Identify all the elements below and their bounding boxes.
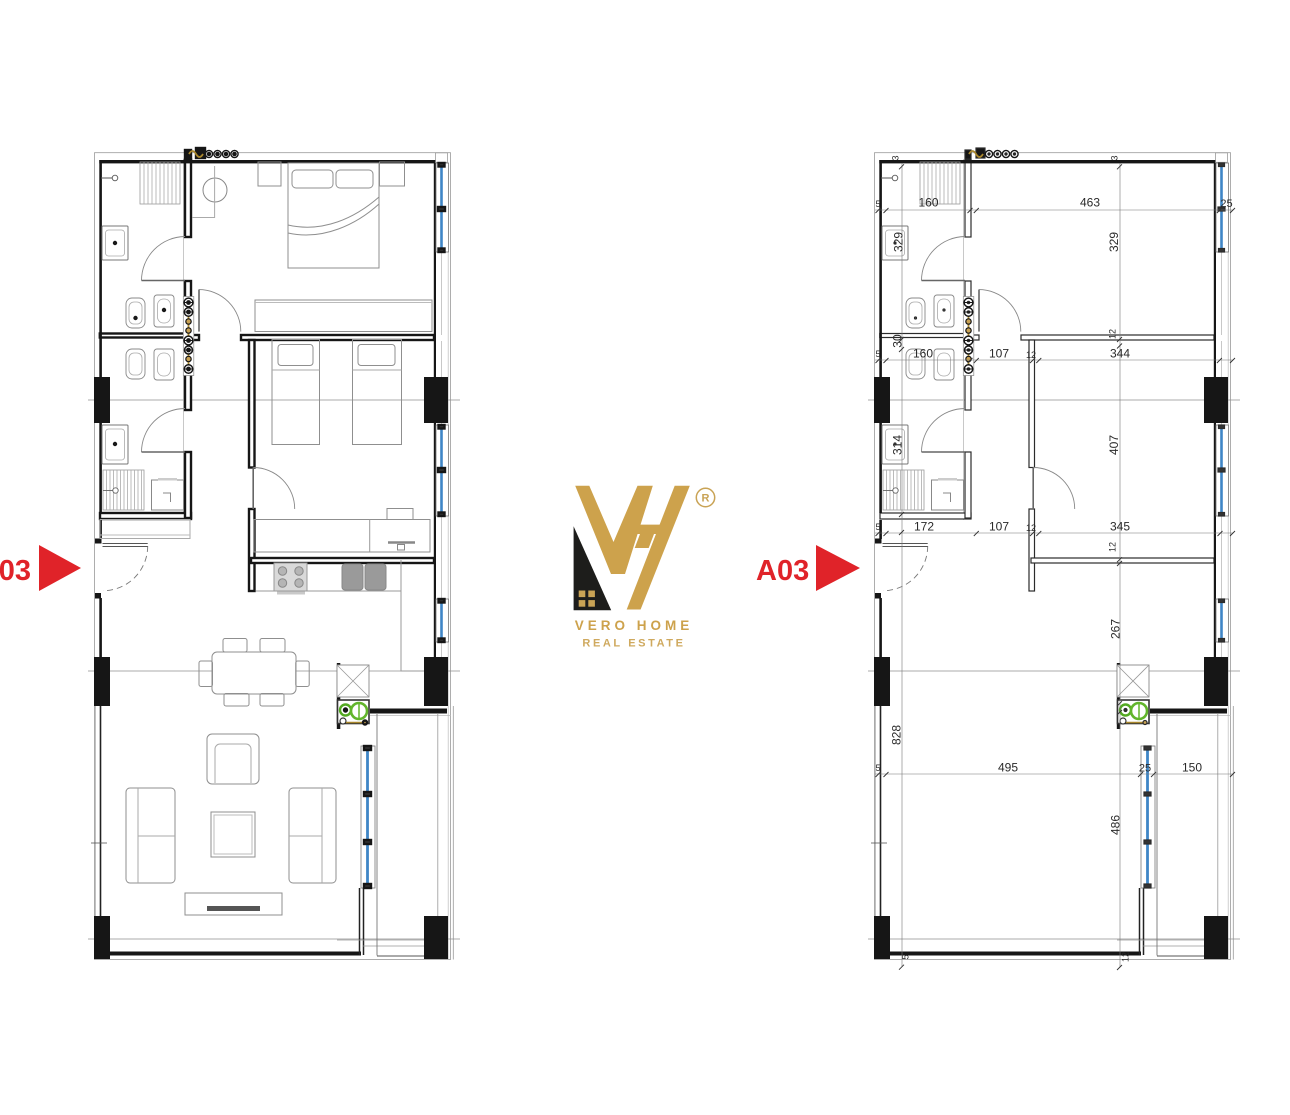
svg-text:486: 486 <box>1109 815 1123 835</box>
svg-text:329: 329 <box>892 232 906 252</box>
svg-text:107: 107 <box>989 520 1009 534</box>
svg-text:828: 828 <box>890 725 904 745</box>
svg-text:267: 267 <box>1109 619 1123 639</box>
svg-text:12: 12 <box>1108 329 1118 339</box>
svg-text:150: 150 <box>1182 761 1202 775</box>
svg-text:R: R <box>702 493 710 505</box>
svg-text:344: 344 <box>1110 347 1130 361</box>
svg-text:172: 172 <box>914 520 934 534</box>
svg-text:5: 5 <box>875 349 880 359</box>
svg-text:5: 5 <box>875 199 880 209</box>
svg-text:5: 5 <box>875 763 880 773</box>
svg-text:160: 160 <box>913 347 933 361</box>
svg-text:12: 12 <box>1121 952 1131 962</box>
svg-text:VERO HOME: VERO HOME <box>575 618 694 633</box>
svg-text:25: 25 <box>1139 763 1151 775</box>
svg-text:407: 407 <box>1107 435 1121 455</box>
svg-text:12: 12 <box>1026 523 1036 533</box>
svg-text:3: 3 <box>1110 155 1120 160</box>
svg-text:314: 314 <box>891 435 905 455</box>
svg-text:345: 345 <box>1110 520 1130 534</box>
svg-text:5: 5 <box>875 522 880 532</box>
svg-text:A03: A03 <box>756 555 809 587</box>
svg-text:25: 25 <box>1220 198 1232 210</box>
svg-text:160: 160 <box>918 196 938 210</box>
svg-text:3: 3 <box>891 155 901 160</box>
svg-text:12: 12 <box>1026 350 1036 360</box>
svg-text:329: 329 <box>1107 232 1121 252</box>
svg-text:5: 5 <box>901 954 911 959</box>
svg-text:30: 30 <box>891 334 905 348</box>
svg-text:107: 107 <box>989 347 1009 361</box>
svg-text:463: 463 <box>1080 196 1100 210</box>
svg-text:12: 12 <box>1108 542 1118 552</box>
svg-text:495: 495 <box>998 761 1018 775</box>
svg-text:REAL ESTATE: REAL ESTATE <box>582 638 685 650</box>
svg-text:A03: A03 <box>0 555 31 587</box>
